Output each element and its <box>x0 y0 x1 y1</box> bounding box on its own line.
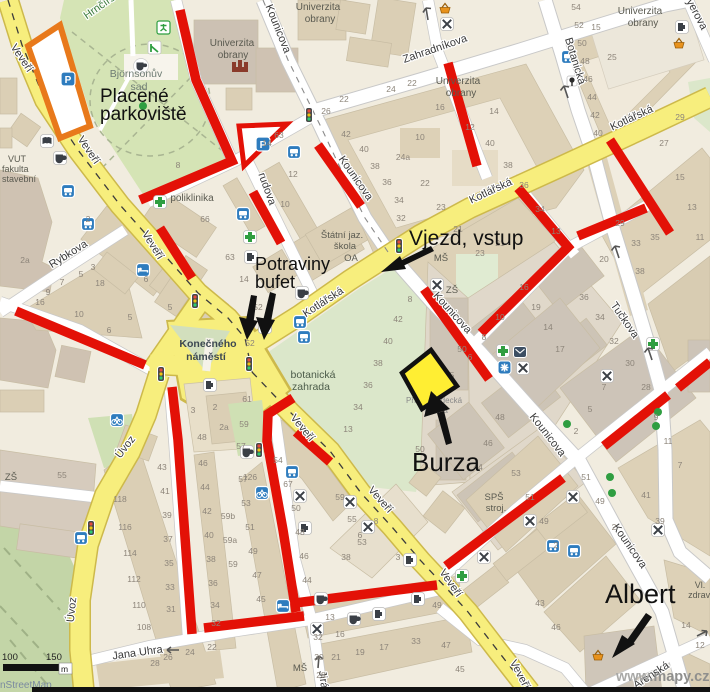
svg-text:2: 2 <box>86 214 91 224</box>
svg-text:Univerzita: Univerzita <box>618 6 663 17</box>
svg-text:49: 49 <box>432 600 442 610</box>
svg-text:bufet: bufet <box>255 272 295 292</box>
svg-text:50: 50 <box>577 38 587 48</box>
svg-text:42: 42 <box>590 110 600 120</box>
svg-text:100: 100 <box>2 652 18 663</box>
svg-text:13: 13 <box>551 226 561 236</box>
svg-text:8: 8 <box>482 332 487 342</box>
svg-text:5: 5 <box>168 302 173 312</box>
svg-text:48: 48 <box>295 527 305 537</box>
svg-text:33: 33 <box>165 582 175 592</box>
svg-text:12: 12 <box>288 169 298 179</box>
svg-text:21: 21 <box>331 652 341 662</box>
svg-text:19: 19 <box>355 647 365 657</box>
svg-text:32: 32 <box>211 618 221 628</box>
svg-text:44: 44 <box>587 92 597 102</box>
svg-text:13: 13 <box>325 612 335 622</box>
svg-text:6: 6 <box>107 325 112 335</box>
svg-text:2: 2 <box>574 426 579 436</box>
svg-text:17: 17 <box>555 344 565 354</box>
svg-text:34: 34 <box>595 312 605 322</box>
svg-text:ZŠ: ZŠ <box>5 472 17 483</box>
svg-text:10: 10 <box>415 132 425 142</box>
svg-text:3: 3 <box>191 405 196 415</box>
svg-text:59: 59 <box>239 419 249 429</box>
svg-text:26: 26 <box>163 652 173 662</box>
svg-text:53: 53 <box>241 498 251 508</box>
svg-text:15: 15 <box>591 22 601 32</box>
svg-text:52: 52 <box>245 338 255 348</box>
svg-text:2: 2 <box>612 522 617 532</box>
svg-text:stroj.: stroj. <box>486 503 507 514</box>
svg-text:obrany: obrany <box>305 14 336 25</box>
svg-text:36: 36 <box>208 578 218 588</box>
svg-text:14: 14 <box>681 620 691 630</box>
svg-text:obrany: obrany <box>446 88 477 99</box>
svg-text:náměstí: náměstí <box>186 351 227 363</box>
svg-text:Vl.: Vl. <box>695 580 706 590</box>
svg-text:28: 28 <box>150 658 160 668</box>
svg-text:12: 12 <box>465 122 475 132</box>
svg-text:Vjezd, vstup: Vjezd, vstup <box>409 227 523 250</box>
svg-text:33: 33 <box>631 238 641 248</box>
svg-text:16: 16 <box>35 297 45 307</box>
svg-text:57: 57 <box>238 474 248 484</box>
svg-text:www.mapy.cz: www.mapy.cz <box>615 669 710 685</box>
svg-text:16: 16 <box>435 102 445 112</box>
svg-text:36: 36 <box>519 180 529 190</box>
svg-text:14: 14 <box>489 106 499 116</box>
svg-text:112: 112 <box>127 574 141 584</box>
svg-text:53: 53 <box>357 537 367 547</box>
svg-text:38: 38 <box>635 266 645 276</box>
svg-text:stavební: stavební <box>2 174 37 184</box>
svg-text:59: 59 <box>335 492 345 502</box>
svg-text:114: 114 <box>123 548 137 558</box>
svg-text:ZŠ: ZŠ <box>446 285 458 296</box>
svg-text:7: 7 <box>602 382 607 392</box>
svg-text:6: 6 <box>468 352 473 362</box>
svg-text:35: 35 <box>650 232 660 242</box>
svg-text:50: 50 <box>291 503 301 513</box>
svg-text:54: 54 <box>273 455 283 465</box>
svg-text:8: 8 <box>176 160 181 170</box>
svg-text:poliklinika: poliklinika <box>170 193 214 204</box>
svg-text:29: 29 <box>615 218 625 228</box>
svg-text:8: 8 <box>374 516 379 526</box>
svg-text:34: 34 <box>535 204 545 214</box>
svg-text:34: 34 <box>210 600 220 610</box>
svg-text:Štátní jaz.: Štátní jaz. <box>321 230 363 241</box>
svg-text:44: 44 <box>302 575 312 585</box>
svg-text:46: 46 <box>299 551 309 561</box>
svg-text:32: 32 <box>609 336 619 346</box>
svg-text:3: 3 <box>396 552 401 562</box>
svg-text:116: 116 <box>118 522 132 532</box>
svg-text:59b: 59b <box>221 511 235 521</box>
svg-text:66: 66 <box>200 214 210 224</box>
svg-text:48: 48 <box>580 56 590 66</box>
svg-text:28: 28 <box>641 382 651 392</box>
svg-text:Albert: Albert <box>605 579 676 609</box>
svg-text:7: 7 <box>60 277 65 287</box>
svg-text:49: 49 <box>248 546 258 556</box>
svg-text:38: 38 <box>373 358 383 368</box>
svg-text:10: 10 <box>495 312 505 322</box>
svg-text:6: 6 <box>144 274 149 284</box>
svg-text:46: 46 <box>198 458 208 468</box>
svg-text:63: 63 <box>274 130 284 140</box>
svg-text:39: 39 <box>655 516 665 526</box>
svg-text:škola: škola <box>334 241 357 252</box>
svg-text:51: 51 <box>525 492 535 502</box>
svg-text:7: 7 <box>678 460 683 470</box>
svg-text:30: 30 <box>625 358 635 368</box>
svg-text:Björnsonův: Björnsonův <box>110 68 163 80</box>
svg-text:67: 67 <box>283 479 293 489</box>
svg-text:34: 34 <box>394 195 404 205</box>
svg-text:59: 59 <box>228 559 238 569</box>
svg-text:59a: 59a <box>223 535 237 545</box>
svg-text:48: 48 <box>197 432 207 442</box>
svg-text:5: 5 <box>79 269 84 279</box>
svg-text:38: 38 <box>503 160 513 170</box>
svg-text:fakulta: fakulta <box>2 164 29 174</box>
svg-text:40: 40 <box>359 144 369 154</box>
svg-text:10: 10 <box>280 199 290 209</box>
svg-text:53: 53 <box>511 468 521 478</box>
svg-text:OA: OA <box>344 253 358 264</box>
svg-text:35: 35 <box>164 558 174 568</box>
svg-text:50: 50 <box>457 344 467 354</box>
svg-text:37: 37 <box>163 534 173 544</box>
svg-text:9: 9 <box>654 412 659 422</box>
svg-text:61: 61 <box>242 394 252 404</box>
svg-text:108: 108 <box>137 622 151 632</box>
svg-text:11: 11 <box>696 232 705 242</box>
svg-text:28: 28 <box>316 670 326 680</box>
svg-text:2a: 2a <box>20 255 30 265</box>
svg-text:9: 9 <box>46 287 51 297</box>
svg-text:11: 11 <box>664 436 673 446</box>
svg-text:2a: 2a <box>219 422 229 432</box>
svg-text:47: 47 <box>252 570 262 580</box>
svg-text:14: 14 <box>543 322 553 332</box>
svg-text:150: 150 <box>46 652 62 663</box>
svg-text:47: 47 <box>441 640 451 650</box>
svg-text:22: 22 <box>407 78 417 88</box>
svg-text:23: 23 <box>436 202 446 212</box>
svg-text:42: 42 <box>393 314 403 324</box>
svg-text:19: 19 <box>531 302 541 312</box>
svg-text:43: 43 <box>157 462 167 472</box>
svg-text:39: 39 <box>162 510 172 520</box>
svg-text:parkoviště: parkoviště <box>100 104 187 125</box>
svg-text:Univerzita: Univerzita <box>436 76 481 87</box>
svg-text:16: 16 <box>335 629 345 639</box>
svg-text:57: 57 <box>236 441 246 451</box>
svg-text:45: 45 <box>455 664 465 674</box>
svg-text:40: 40 <box>204 530 214 540</box>
svg-text:MŠ: MŠ <box>434 253 448 264</box>
svg-text:32: 32 <box>396 213 406 223</box>
svg-text:46: 46 <box>551 622 561 632</box>
svg-text:49: 49 <box>595 496 605 506</box>
svg-text:SPŠ: SPŠ <box>484 492 503 503</box>
svg-text:zdrav.: zdrav. <box>688 590 710 600</box>
svg-text:VUT: VUT <box>8 154 27 164</box>
svg-text:22: 22 <box>420 178 430 188</box>
svg-text:3: 3 <box>91 262 96 272</box>
svg-text:26: 26 <box>321 106 331 116</box>
svg-text:33: 33 <box>411 636 421 646</box>
svg-text:118: 118 <box>113 494 127 504</box>
svg-text:10: 10 <box>74 309 84 319</box>
svg-text:Úvoz: Úvoz <box>64 596 80 622</box>
svg-text:55: 55 <box>347 514 357 524</box>
svg-text:40: 40 <box>383 336 393 346</box>
svg-text:15: 15 <box>675 172 685 182</box>
svg-text:8: 8 <box>408 294 413 304</box>
svg-text:30: 30 <box>314 652 324 662</box>
svg-text:22: 22 <box>339 94 349 104</box>
svg-text:m: m <box>61 664 68 674</box>
svg-text:41: 41 <box>641 490 651 500</box>
svg-text:Univerzita: Univerzita <box>210 38 255 49</box>
svg-text:Univerzita: Univerzita <box>296 2 341 13</box>
svg-text:46: 46 <box>583 74 593 84</box>
svg-text:110: 110 <box>132 600 146 610</box>
svg-text:2: 2 <box>213 402 218 412</box>
svg-text:botanická: botanická <box>291 369 336 381</box>
svg-text:25: 25 <box>607 52 617 62</box>
svg-text:24: 24 <box>185 647 195 657</box>
svg-text:12: 12 <box>695 640 705 650</box>
svg-text:36: 36 <box>579 292 589 302</box>
svg-text:41: 41 <box>160 486 170 496</box>
svg-text:38: 38 <box>206 554 216 564</box>
svg-text:38: 38 <box>341 552 351 562</box>
svg-text:14: 14 <box>239 274 249 284</box>
svg-text:42: 42 <box>202 506 212 516</box>
svg-text:29: 29 <box>675 112 685 122</box>
svg-text:24: 24 <box>386 84 396 94</box>
svg-text:31: 31 <box>166 604 176 614</box>
svg-text:54: 54 <box>571 2 581 12</box>
svg-text:48: 48 <box>495 412 505 422</box>
svg-text:36: 36 <box>363 380 373 390</box>
svg-text:22: 22 <box>207 642 217 652</box>
svg-text:MŠ: MŠ <box>293 663 307 674</box>
svg-text:Konečného: Konečného <box>179 338 236 350</box>
svg-text:Burza: Burza <box>412 447 480 477</box>
svg-text:18: 18 <box>95 278 105 288</box>
svg-text:zahrada: zahrada <box>292 381 330 393</box>
svg-text:obrany: obrany <box>628 18 659 29</box>
svg-text:14: 14 <box>262 138 272 148</box>
svg-text:Potraviny: Potraviny <box>255 254 330 274</box>
svg-text:5: 5 <box>588 404 593 414</box>
svg-text:5: 5 <box>128 312 133 322</box>
svg-text:obrany: obrany <box>218 50 249 61</box>
svg-text:13: 13 <box>687 202 697 212</box>
svg-text:36: 36 <box>382 177 392 187</box>
svg-text:55: 55 <box>57 470 67 480</box>
svg-text:45: 45 <box>256 594 266 604</box>
svg-text:52: 52 <box>574 20 584 30</box>
svg-text:32: 32 <box>313 632 323 642</box>
svg-text:34: 34 <box>353 402 363 412</box>
svg-text:40: 40 <box>485 138 495 148</box>
svg-text:2: 2 <box>554 540 559 550</box>
svg-text:49: 49 <box>539 516 549 526</box>
svg-text:40: 40 <box>593 128 603 138</box>
svg-text:63: 63 <box>225 252 235 262</box>
svg-text:16: 16 <box>519 282 529 292</box>
svg-text:43: 43 <box>535 598 545 608</box>
svg-text:17: 17 <box>379 642 389 652</box>
svg-text:38: 38 <box>370 161 380 171</box>
svg-text:44: 44 <box>200 482 210 492</box>
svg-text:24a: 24a <box>396 152 410 162</box>
svg-text:46: 46 <box>483 438 493 448</box>
svg-text:27: 27 <box>659 138 669 148</box>
svg-text:20: 20 <box>599 254 609 264</box>
svg-text:51: 51 <box>581 472 591 482</box>
svg-text:13: 13 <box>343 424 353 434</box>
svg-text:42: 42 <box>341 129 351 139</box>
svg-text:51: 51 <box>245 522 255 532</box>
